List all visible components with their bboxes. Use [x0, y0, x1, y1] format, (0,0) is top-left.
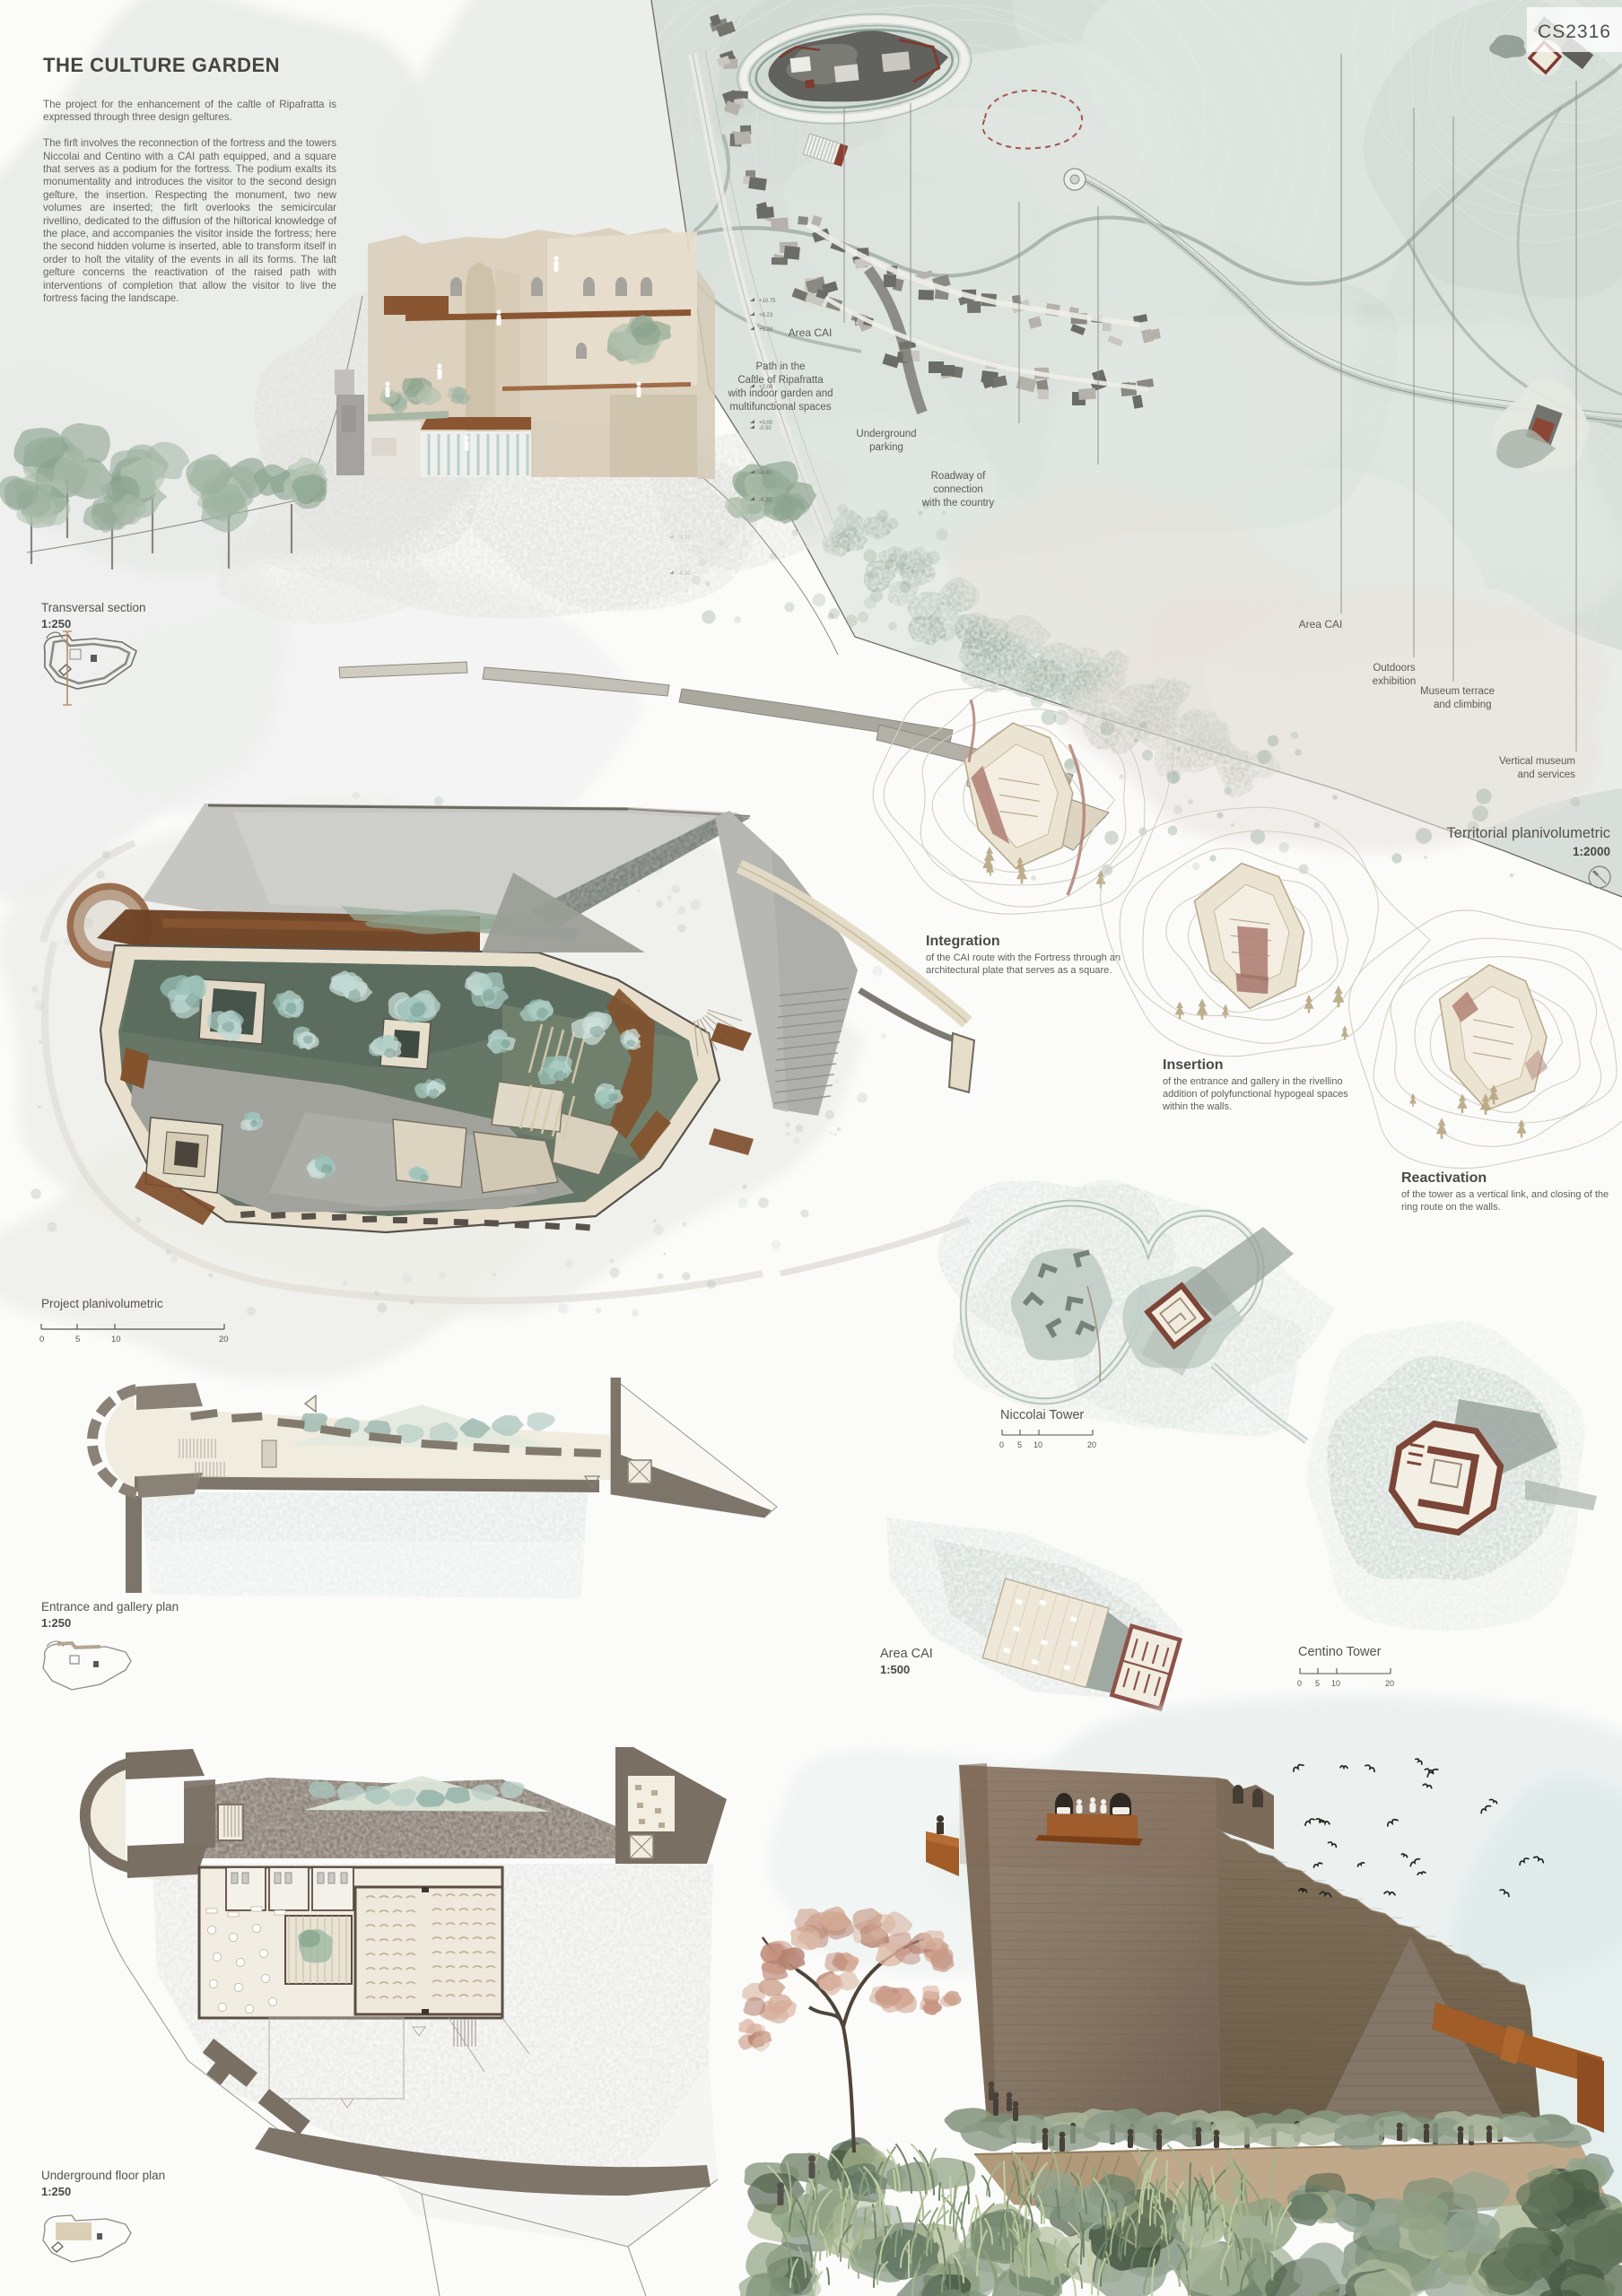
svg-text:with the country: with the country	[921, 498, 995, 509]
svg-text:Entrance and gallery plan: Entrance and gallery plan	[41, 1600, 179, 1613]
svg-text:Caſtle of Ripafratta: Caſtle of Ripafratta	[737, 375, 824, 386]
svg-text:1:250: 1:250	[41, 1616, 71, 1630]
svg-text:0: 0	[999, 1440, 1004, 1449]
svg-text:Roadway of: Roadway of	[931, 471, 987, 482]
svg-text:-4.00: -4.00	[759, 471, 772, 476]
svg-text:Transversal section: Transversal section	[41, 601, 146, 614]
svg-text:+10.75: +10.75	[759, 299, 776, 304]
svg-text:10: 10	[111, 1335, 121, 1344]
svg-text:20: 20	[1087, 1440, 1096, 1449]
svg-text:Museum terrace: Museum terrace	[1420, 686, 1495, 697]
svg-text:multifunctional spaces: multifunctional spaces	[729, 402, 831, 413]
svg-text:+2.00: +2.00	[759, 385, 773, 390]
svg-text:1:2000: 1:2000	[1573, 845, 1610, 858]
svg-text:10: 10	[1033, 1440, 1042, 1449]
svg-text:1:500: 1:500	[880, 1663, 910, 1676]
svg-text:5: 5	[1017, 1440, 1022, 1449]
svg-text:Area CAI: Area CAI	[880, 1647, 933, 1661]
svg-text:Reactivation: Reactivation	[1401, 1170, 1487, 1186]
svg-text:Insertion: Insertion	[1163, 1057, 1224, 1073]
svg-text:with indoor garden and: with indoor garden and	[728, 388, 833, 399]
svg-text:and services: and services	[1517, 770, 1575, 780]
svg-text:10: 10	[1331, 1679, 1340, 1688]
svg-text:of the tower as a vertical lin: of the tower as a vertical link, and clo…	[1401, 1189, 1609, 1200]
svg-text:parking: parking	[869, 442, 903, 453]
svg-text:and climbing: and climbing	[1434, 700, 1492, 710]
svg-text:CS2316: CS2316	[1538, 22, 1611, 42]
svg-text:0: 0	[1297, 1679, 1302, 1688]
svg-text:Underground floor plan: Underground floor plan	[41, 2169, 165, 2182]
svg-text:1:250: 1:250	[41, 617, 71, 631]
svg-text:0: 0	[39, 1335, 44, 1344]
svg-text:-6.20: -6.20	[759, 498, 772, 503]
svg-text:of the entrance and gallery in: of the entrance and gallery in the rivel…	[1163, 1076, 1343, 1087]
svg-text:Area CAI: Area CAI	[789, 326, 833, 339]
svg-text:-0.50: -0.50	[759, 426, 772, 431]
svg-text:Underground: Underground	[856, 429, 916, 439]
svg-text:Niccolai Tower: Niccolai Tower	[1000, 1408, 1084, 1422]
svg-text:Path in the: Path in the	[756, 361, 806, 372]
svg-text:Vertical museum: Vertical museum	[1499, 756, 1575, 767]
svg-text:addition of polyfunctional hyp: addition of polyfunctional hypogeal spac…	[1163, 1089, 1348, 1100]
svg-text:Integration: Integration	[926, 934, 1000, 949]
svg-text:5: 5	[1315, 1679, 1320, 1688]
svg-text:5: 5	[75, 1335, 80, 1344]
svg-text:ring route on the walls.: ring route on the walls.	[1401, 1202, 1501, 1213]
svg-text:Project planivolumetric: Project planivolumetric	[41, 1297, 163, 1310]
svg-text:1:250: 1:250	[41, 2185, 71, 2198]
svg-text:+5.20: +5.20	[759, 327, 773, 333]
svg-text:+8.23: +8.23	[759, 313, 773, 318]
svg-text:architectural plate that serve: architectural plate that serves as a squ…	[926, 965, 1112, 976]
svg-text:connection: connection	[933, 484, 983, 495]
svg-text:Outdoors: Outdoors	[1373, 663, 1416, 674]
svg-text:Area CAI: Area CAI	[1299, 618, 1343, 631]
svg-text:of the CAI route with the Fort: of the CAI route with the Fortress throu…	[926, 952, 1121, 963]
svg-text:Territorial planivolumetric: Territorial planivolumetric	[1447, 825, 1610, 841]
svg-text:20: 20	[219, 1335, 229, 1344]
svg-text:Centino Tower: Centino Tower	[1298, 1645, 1382, 1659]
svg-text:20: 20	[1385, 1679, 1394, 1688]
svg-text:exhibition: exhibition	[1373, 676, 1417, 687]
svg-text:within the walls.: within the walls.	[1162, 1101, 1232, 1112]
